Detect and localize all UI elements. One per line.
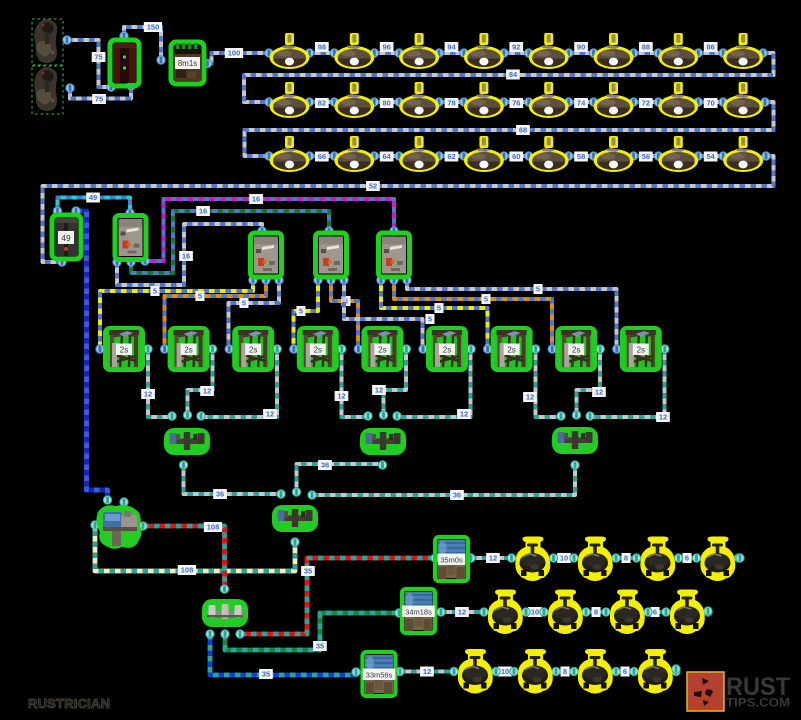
svg-text:35m0s: 35m0s [440, 556, 463, 565]
svg-text:5: 5 [153, 287, 157, 296]
svg-text:12: 12 [144, 390, 152, 399]
svg-text:6: 6 [653, 608, 657, 617]
svg-text:36: 36 [321, 461, 329, 470]
svg-text:36: 36 [453, 491, 461, 500]
svg-text:12: 12 [526, 393, 534, 402]
svg-text:5: 5 [242, 299, 246, 308]
svg-text:10: 10 [501, 667, 509, 676]
svg-text:78: 78 [447, 99, 455, 108]
svg-text:108: 108 [181, 566, 194, 575]
svg-text:35: 35 [304, 567, 312, 576]
svg-text:2s: 2s [443, 346, 451, 355]
svg-text:92: 92 [512, 43, 520, 52]
svg-text:35: 35 [262, 670, 270, 679]
svg-text:12: 12 [423, 667, 431, 676]
svg-text:12: 12 [266, 410, 274, 419]
svg-text:16: 16 [182, 252, 190, 261]
svg-text:2s: 2s [120, 346, 128, 355]
svg-text:8: 8 [563, 667, 567, 676]
svg-text:88: 88 [642, 43, 650, 52]
svg-text:150: 150 [147, 23, 160, 32]
svg-text:2s: 2s [507, 346, 515, 355]
svg-text:52: 52 [369, 182, 377, 191]
svg-text:2s: 2s [378, 346, 386, 355]
svg-text:8: 8 [624, 554, 628, 563]
svg-text:98: 98 [318, 43, 326, 52]
svg-text:12: 12 [375, 386, 383, 395]
svg-text:5: 5 [299, 307, 303, 316]
svg-text:90: 90 [577, 43, 585, 52]
svg-text:10: 10 [531, 608, 539, 617]
svg-text:84: 84 [509, 70, 518, 79]
svg-text:5: 5 [536, 285, 540, 294]
svg-text:10: 10 [560, 554, 568, 563]
svg-text:2s: 2s [249, 346, 257, 355]
svg-text:5: 5 [198, 292, 202, 301]
svg-text:94: 94 [447, 43, 456, 52]
svg-text:100: 100 [228, 49, 241, 58]
svg-text:86: 86 [707, 43, 715, 52]
svg-text:76: 76 [512, 99, 520, 108]
svg-text:8: 8 [594, 608, 598, 617]
svg-text:16: 16 [199, 207, 207, 216]
svg-text:RUSTRICIAN: RUSTRICIAN [28, 696, 110, 711]
svg-text:12: 12 [458, 608, 466, 617]
svg-text:36: 36 [216, 490, 224, 499]
svg-text:66: 66 [318, 152, 326, 161]
svg-text:72: 72 [642, 99, 650, 108]
svg-text:TIPS.COM: TIPS.COM [726, 698, 790, 710]
svg-text:12: 12 [460, 410, 468, 419]
svg-text:54: 54 [707, 152, 716, 161]
svg-text:56: 56 [642, 152, 650, 161]
svg-text:64: 64 [383, 152, 392, 161]
svg-text:82: 82 [318, 99, 326, 108]
svg-text:12: 12 [595, 388, 603, 397]
svg-text:6: 6 [623, 667, 627, 676]
svg-text:12: 12 [203, 387, 211, 396]
svg-text:74: 74 [577, 99, 586, 108]
svg-text:5: 5 [428, 315, 432, 324]
svg-text:5: 5 [437, 304, 441, 313]
svg-text:35: 35 [316, 642, 324, 651]
svg-text:68: 68 [519, 126, 527, 135]
svg-text:75: 75 [95, 95, 103, 104]
svg-text:2s: 2s [314, 346, 322, 355]
svg-text:49: 49 [61, 233, 71, 243]
svg-text:12: 12 [489, 554, 497, 563]
svg-text:58: 58 [577, 152, 585, 161]
svg-text:33m56s: 33m56s [366, 671, 393, 680]
svg-text:5: 5 [484, 295, 488, 304]
svg-text:12: 12 [337, 392, 345, 401]
svg-text:8m1s: 8m1s [178, 59, 198, 68]
svg-text:75: 75 [94, 53, 102, 62]
svg-text:2s: 2s [184, 346, 192, 355]
svg-text:2s: 2s [572, 346, 580, 355]
svg-text:16: 16 [252, 195, 260, 204]
svg-text:62: 62 [447, 152, 455, 161]
svg-text:80: 80 [383, 99, 391, 108]
svg-text:6: 6 [685, 554, 689, 563]
svg-text:60: 60 [512, 152, 520, 161]
svg-text:2s: 2s [637, 346, 645, 355]
svg-text:108: 108 [207, 523, 220, 532]
svg-text:12: 12 [659, 413, 667, 422]
svg-text:96: 96 [383, 43, 391, 52]
svg-text:70: 70 [707, 99, 715, 108]
svg-text:34m18s: 34m18s [405, 608, 432, 617]
svg-text:49: 49 [89, 193, 97, 202]
